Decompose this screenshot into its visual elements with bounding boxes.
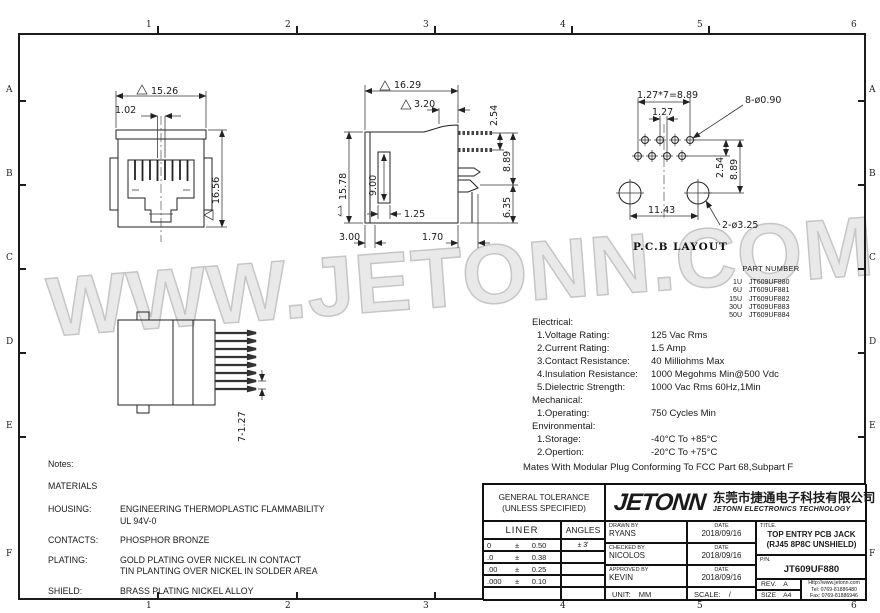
zone-row-label: E — [6, 421, 13, 431]
inspection-triangle-icon — [338, 206, 341, 216]
frame-tick — [19, 184, 26, 186]
zone-row-label: E — [869, 421, 876, 431]
frame-tick — [858, 184, 865, 186]
pn-qty: 6U — [712, 287, 742, 295]
zone-row-label: F — [869, 549, 875, 559]
dim-side-slot-depth: 9.00 — [368, 175, 379, 196]
frame-tick — [19, 268, 26, 270]
material-value: PHOSPHOR BRONZE — [120, 535, 209, 547]
pcb-layout-caption: P.C.B LAYOUT — [633, 241, 728, 253]
dim-side-plate: 3.00 — [339, 232, 360, 243]
company-name-cn: 东莞市捷通电子科技有限公司 — [713, 492, 876, 506]
frame-tick — [157, 592, 159, 599]
drawing-title-cell: TITLE. TOP ENTRY PCB JACK (RJ45 8P8C UNS… — [756, 521, 867, 555]
spec-value: 1000 Megohms Min@500 Vdc — [651, 368, 779, 381]
dim-pcb-pitch: 1.27 — [652, 107, 673, 118]
dim-side-top: 3.20 — [414, 99, 435, 110]
zone-row-label: C — [6, 253, 13, 263]
spec-label: 5.Dielectric Strength: — [523, 381, 651, 394]
spec-label: 1.Storage: — [523, 433, 651, 446]
zone-col-label: 3 — [423, 601, 429, 611]
tolerance-angle — [561, 563, 605, 575]
spec-value: -40°C To +85°C — [651, 433, 717, 446]
dim-side-slot-width: 1.25 — [404, 209, 425, 220]
spec-label: 2.Current Rating: — [523, 342, 651, 355]
material-label: CONTACTS: — [48, 535, 120, 547]
tolerance-col-liner: LINER — [483, 521, 561, 539]
inspection-triangle-icon — [380, 81, 390, 90]
spec-value: 40 Milliohms Max — [651, 355, 724, 368]
material-value: BRASS PLATING NICKEL ALLOY — [120, 586, 253, 598]
dim-side-peg: 6.35 — [502, 197, 513, 218]
title-block: GENERAL TOLERANCE (UNLESS SPECIFIED) LIN… — [482, 483, 866, 600]
spec-label: 4.Insulation Resistance: — [523, 368, 651, 381]
drawing-sheet: WWW.JETONN.COM 1 2 3 4 5 6 1 2 3 4 5 6 A… — [0, 0, 880, 613]
approved-by-cell: APPROVED BYKEVIN — [605, 565, 687, 587]
notes-title: Notes: — [48, 459, 488, 469]
spec-label: 1.Operating: — [523, 407, 651, 420]
zone-col-label: 3 — [423, 20, 429, 30]
frame-tick — [19, 100, 26, 102]
dim-side-pin-gap: 2.54 — [489, 105, 500, 126]
dim-pcb-span: 1.27*7=8.89 — [637, 90, 698, 101]
tolerance-angle: ± 3' — [561, 539, 605, 551]
tolerance-row: .000±0.10 — [483, 575, 561, 587]
dim-side-width: 16.29 — [394, 80, 421, 91]
spec-value: 125 Vac Rms — [651, 329, 707, 342]
zone-row-label: D — [869, 337, 876, 347]
material-row: CONTACTS: PHOSPHOR BRONZE — [48, 535, 488, 547]
company-fax: Fax: 0769-81886946 — [810, 593, 858, 600]
zone-row-label: A — [869, 85, 876, 95]
tolerance-empty-cell — [483, 587, 561, 601]
pn-qty: 15U — [712, 296, 742, 304]
dim-pcb-big-holes: 2-ø3.25 — [722, 220, 758, 231]
dim-pcb-big-pitch: 11.43 — [648, 205, 675, 216]
dim-front-width: 15.26 — [151, 86, 178, 97]
frame-tick — [858, 352, 865, 354]
bottom-pins — [215, 331, 256, 391]
tolerance-row: .0±0.38 — [483, 551, 561, 563]
zone-col-label: 4 — [560, 20, 566, 30]
frame-tick — [434, 26, 436, 33]
inspection-triangle-icon — [401, 100, 411, 109]
dim-front-height: 16.56 — [211, 177, 222, 204]
dim-side-height: 15.78 — [338, 173, 349, 200]
material-value: GOLD PLATING OVER NICKEL IN CONTACTTIN P… — [120, 555, 318, 578]
checked-by-cell: CHECKED BYNICOLOS — [605, 543, 687, 565]
size-value: A4 — [783, 592, 791, 599]
spec-section: Mechanical: — [523, 394, 651, 407]
zone-col-label: 2 — [285, 601, 291, 611]
pn-code: JT609UF881 — [749, 287, 789, 295]
zone-col-label: 1 — [146, 601, 152, 611]
zone-row-label: A — [6, 85, 13, 95]
pn-qty: 30U — [712, 304, 742, 312]
part-number-table: PART NUMBER 1UJT609UF880 6UJT609UF881 15… — [712, 264, 830, 320]
zone-row-label: F — [6, 549, 12, 559]
frame-tick — [571, 26, 573, 33]
zone-col-label: 5 — [697, 20, 703, 30]
material-value: ENGINEERING THERMOPLASTIC FLAMMABILITYUL… — [120, 504, 325, 527]
material-label: SHIELD: — [48, 586, 120, 598]
revision-value: A — [783, 581, 788, 588]
spec-section: Electrical: — [523, 316, 651, 329]
pn-code: JT609UF883 — [749, 304, 789, 312]
drawing-title: TOP ENTRY PCB JACK — [767, 530, 855, 539]
tolerance-header: GENERAL TOLERANCE (UNLESS SPECIFIED) — [483, 484, 605, 521]
frame-tick — [858, 436, 865, 438]
frame-tick — [157, 26, 159, 33]
material-row: SHIELD: BRASS PLATING NICKEL ALLOY — [48, 586, 488, 598]
zone-col-label: 1 — [146, 20, 152, 30]
frame-tick — [434, 592, 436, 599]
materials-title: MATERIALS — [48, 481, 488, 491]
frame-tick — [19, 436, 26, 438]
tolerance-angle — [561, 575, 605, 587]
size-cell: SIZEA4 — [756, 590, 801, 601]
part-number-row: 15UJT609UF882 — [712, 296, 830, 304]
dim-side-pin-span: 8.89 — [502, 151, 513, 172]
zone-col-label: 2 — [285, 20, 291, 30]
spec-label: 2.Opertion: — [523, 446, 651, 459]
revision-cell: REV.A — [756, 579, 801, 590]
drawn-by-cell: DRAWN BYRYANS — [605, 521, 687, 543]
spec-section: Environmental: — [523, 420, 651, 433]
zone-row-label: B — [869, 169, 876, 179]
pn-code: JT609UF880 — [749, 279, 789, 287]
unit-cell: UNIT:MM — [605, 587, 687, 601]
side-view: 16.29 3.20 15.78 9.00 1.25 2.54 8.89 6.3… — [338, 68, 533, 258]
material-row: HOUSING: ENGINEERING THERMOPLASTIC FLAMM… — [48, 504, 488, 527]
dim-side-peg-width: 1.70 — [422, 232, 443, 243]
bottom-view: 7-1.27 — [108, 300, 268, 455]
material-label: HOUSING: — [48, 504, 120, 527]
zone-col-label: 6 — [851, 601, 857, 611]
jetonn-logo: JETONN — [613, 489, 707, 517]
tolerance-empty-cell — [561, 587, 605, 601]
tolerance-row: 0±0.50 — [483, 539, 561, 551]
tolerance-angle — [561, 551, 605, 563]
checked-date-cell: DATE2018/09/16 — [687, 543, 756, 565]
zone-col-label: 4 — [560, 601, 566, 611]
zone-row-label: C — [869, 253, 876, 263]
part-number-title: PART NUMBER — [712, 264, 830, 273]
zone-row-label: D — [6, 337, 13, 347]
pcb-layout-view: 1.27*7=8.89 1.27 8-ø0.90 2.54 8.89 11.43… — [600, 80, 860, 260]
frame-tick — [858, 268, 865, 270]
specifications: Electrical: 1.Voltage Rating:125 Vac Rms… — [523, 316, 871, 474]
spec-label: 3.Contact Resistance: — [523, 355, 651, 368]
front-view: 15.26 1.02 16.56 — [85, 82, 260, 252]
material-label: PLATING: — [48, 555, 120, 578]
inspection-triangle-icon — [204, 210, 213, 220]
zone-col-label: 5 — [697, 601, 703, 611]
dim-pcb-small-holes: 8-ø0.90 — [745, 95, 781, 106]
pn-code: JT609UF882 — [749, 296, 789, 304]
spec-value: -20°C To +75°C — [651, 446, 717, 459]
spec-value: 750 Cycles Min — [651, 407, 716, 420]
frame-tick — [296, 592, 298, 599]
material-row: PLATING: GOLD PLATING OVER NICKEL IN CON… — [48, 555, 488, 578]
drawing-subtitle: (RJ45 8P8C UNSHIELD) — [767, 540, 857, 549]
tolerance-row: .00±0.25 — [483, 563, 561, 575]
zone-col-label: 6 — [851, 20, 857, 30]
part-number-row: 6UJT609UF881 — [712, 287, 830, 295]
spec-label: 1.Voltage Rating: — [523, 329, 651, 342]
contact-cell: Http://www.jetonn.com Tel: 0769-81886480… — [801, 579, 867, 601]
part-number-cell: P/N. JT609UF880 — [756, 555, 867, 579]
spec-value: 1.5 Amp — [651, 342, 686, 355]
approved-date-cell: DATE2018/09/16 — [687, 565, 756, 587]
tolerance-col-angles: ANGLES — [561, 521, 605, 539]
drawn-date-cell: DATE2018/09/16 — [687, 521, 756, 543]
part-number-row: 30UJT609UF883 — [712, 304, 830, 312]
pn-qty: 1U — [712, 279, 742, 287]
inspection-triangle-icon — [137, 85, 147, 94]
frame-tick — [296, 26, 298, 33]
frame-tick — [708, 26, 710, 33]
frame-tick — [858, 100, 865, 102]
spec-value: 1000 Vac Rms 60Hz,1Min — [651, 381, 761, 394]
dim-pcb-rows-span: 8.89 — [729, 159, 740, 180]
scale-cell: SCALE:/ — [687, 587, 756, 601]
bottom-body — [118, 320, 215, 405]
part-number-row: 1UJT609UF880 — [712, 279, 830, 287]
frame-tick — [19, 352, 26, 354]
dim-front-pin: 1.02 — [115, 105, 136, 116]
dim-pcb-row-gap: 2.54 — [715, 157, 726, 178]
dim-bottom-pins: 7-1.27 — [237, 411, 248, 442]
part-number-value: JT609UF880 — [757, 564, 866, 575]
company-header: JETONN 东莞市捷通电子科技有限公司 JETONN ELECTRONICS … — [605, 484, 867, 521]
company-name-en: JETONN ELECTRONICS TECHNOLOGY — [713, 506, 876, 514]
notes-section: Notes: MATERIALS HOUSING: ENGINEERING TH… — [48, 459, 488, 605]
spec-footer: Mates With Modular Plug Conforming To FC… — [523, 462, 871, 474]
zone-row-label: B — [6, 169, 13, 179]
